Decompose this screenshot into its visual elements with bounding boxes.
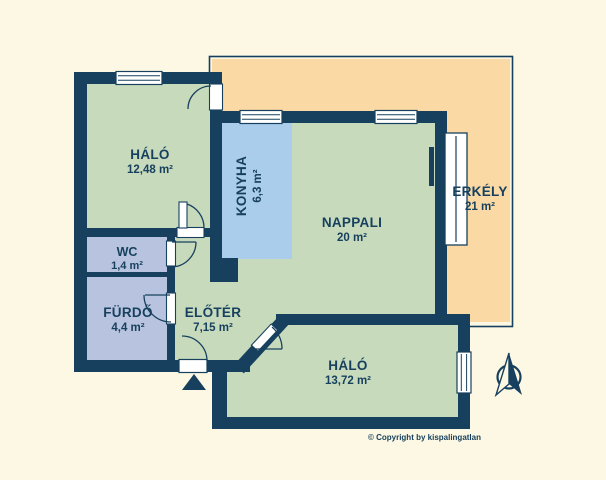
label-eloter-area: 7,15 m² — [193, 322, 233, 334]
label-halo1-area: 12,48 m² — [127, 164, 173, 176]
label-halo2-name: HÁLÓ — [328, 358, 367, 373]
label-furdo-name: FÜRDŐ — [103, 305, 153, 320]
wall-wc-furdo — [74, 272, 175, 277]
window-halo1-top — [116, 72, 162, 85]
label-nappali-name: NAPPALI — [322, 215, 382, 230]
label-furdo-area: 4,4 m² — [111, 322, 144, 334]
radiator-symbol — [429, 147, 434, 186]
label-nappali-area: 20 m² — [337, 232, 367, 244]
balcony-top-strip — [212, 59, 510, 111]
label-halo2-area: 13,72 m² — [325, 375, 371, 387]
floor-plan-canvas: HÁLÓ 12,48 m² KONYHA 6,3 m² NAPPALI 20 m… — [0, 0, 606, 480]
wall-left-outer — [74, 72, 87, 372]
floor-plan-svg: HÁLÓ 12,48 m² KONYHA 6,3 m² NAPPALI 20 m… — [0, 0, 606, 480]
wall-halo2-top — [276, 314, 470, 325]
label-konyha-area: 6,3 m² — [252, 169, 264, 202]
window-nappali-top — [375, 111, 417, 124]
label-halo1-name: HÁLÓ — [130, 147, 169, 162]
copyright-text: © Copyright by kispalingatlan — [368, 433, 481, 442]
wall-stub-foot — [210, 258, 238, 282]
window-halo2-right — [457, 352, 471, 393]
label-wc-area: 1,4 m² — [111, 260, 143, 272]
label-eloter-name: ELŐTÉR — [185, 305, 242, 320]
wall-halo2-left — [212, 360, 227, 429]
label-wc-name: WC — [117, 245, 138, 259]
label-erkely-name: ERKÉLY — [452, 184, 507, 199]
wall-halo2-bottom — [212, 417, 470, 429]
window-konyha-top — [240, 111, 282, 124]
label-erkely-area: 21 m² — [465, 201, 495, 213]
label-konyha-name: KONYHA — [234, 156, 249, 216]
